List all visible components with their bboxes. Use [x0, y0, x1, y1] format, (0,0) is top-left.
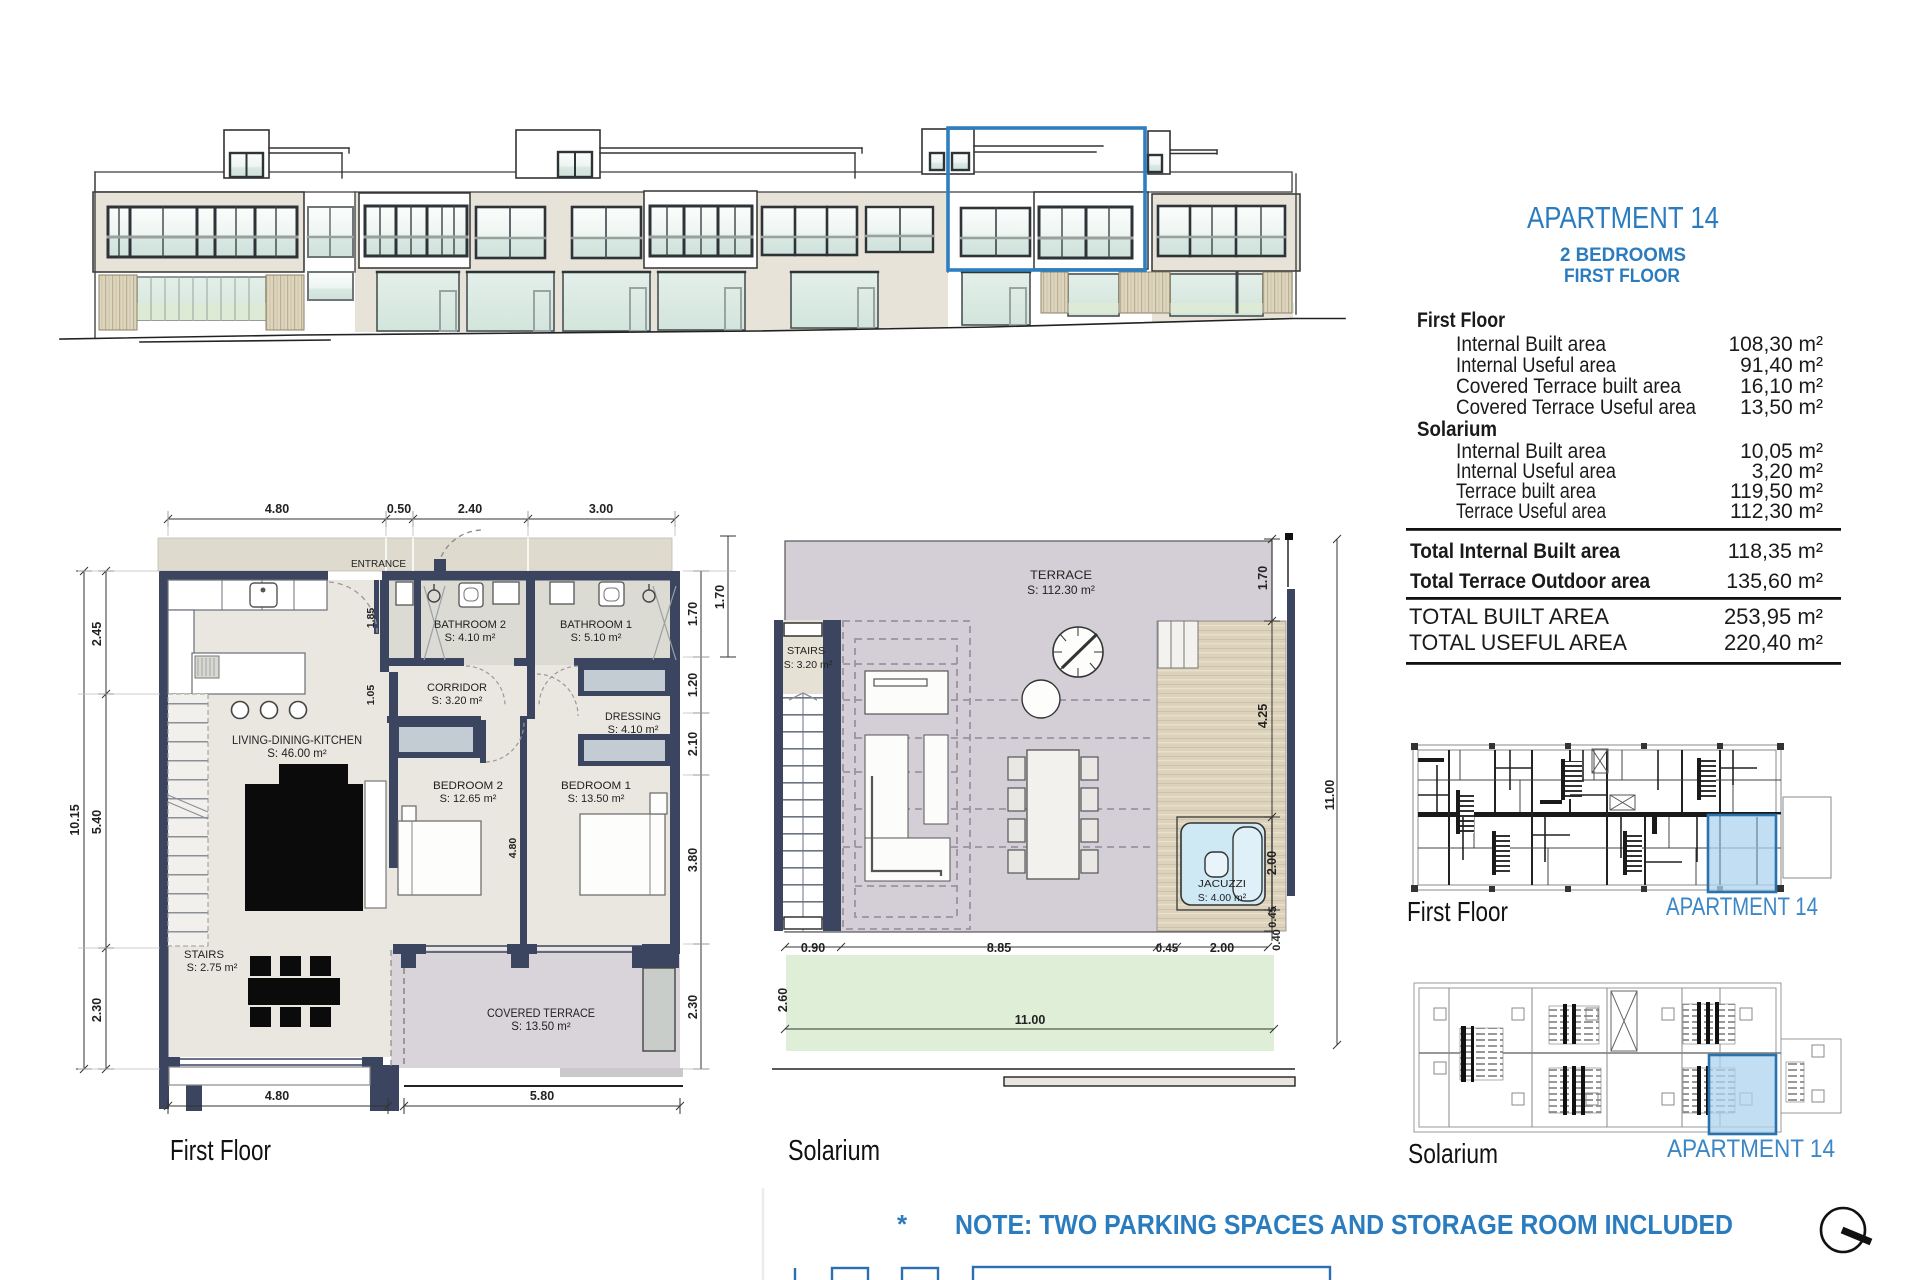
svg-text:2.30: 2.30 [90, 998, 104, 1022]
svg-text:First Floor: First Floor [170, 1135, 271, 1167]
svg-text:Solarium: Solarium [788, 1135, 880, 1167]
svg-text:4.80: 4.80 [265, 502, 289, 516]
svg-text:2 BEDROOMS: 2 BEDROOMS [1560, 245, 1686, 266]
svg-text:First Floor: First Floor [1407, 896, 1508, 927]
svg-text:Solarium: Solarium [1408, 1138, 1498, 1169]
svg-text:S: 4.00 m²: S: 4.00 m² [1198, 892, 1247, 904]
svg-text:1.70: 1.70 [713, 585, 727, 609]
svg-text:TOTAL BUILT AREA: TOTAL BUILT AREA [1409, 604, 1609, 629]
svg-text:APARTMENT 14: APARTMENT 14 [1666, 893, 1818, 921]
svg-text:Covered Terrace Useful area: Covered Terrace Useful area [1456, 396, 1696, 419]
svg-text:APARTMENT 14: APARTMENT 14 [1527, 200, 1719, 235]
svg-text:STAIRS: STAIRS [184, 949, 224, 961]
svg-text:220,40 m²: 220,40 m² [1724, 630, 1823, 655]
svg-text:10.15: 10.15 [68, 804, 82, 835]
svg-text:118,35 m²: 118,35 m² [1728, 539, 1823, 563]
svg-text:First Floor: First Floor [1417, 309, 1505, 332]
svg-text:0.45: 0.45 [1156, 943, 1179, 955]
svg-text:4.25: 4.25 [1256, 704, 1270, 728]
svg-text:3.80: 3.80 [686, 848, 700, 872]
svg-text:Total Internal Built area: Total Internal Built area [1410, 539, 1621, 563]
svg-text:11.00: 11.00 [1323, 780, 1337, 811]
svg-text:JACUZZI: JACUZZI [1198, 878, 1246, 890]
svg-text:S: 12.65 m²: S: 12.65 m² [440, 793, 497, 805]
svg-text:2.00: 2.00 [1210, 941, 1234, 955]
svg-text:Solarium: Solarium [1417, 418, 1497, 441]
svg-text:TERRACE: TERRACE [1030, 568, 1092, 582]
svg-text:5.40: 5.40 [90, 810, 104, 834]
svg-text:S: 5.10 m²: S: 5.10 m² [571, 632, 622, 644]
svg-text:BEDROOM 1: BEDROOM 1 [561, 780, 631, 792]
svg-text:1.20: 1.20 [686, 673, 700, 697]
svg-text:Total Terrace Outdoor area: Total Terrace Outdoor area [1410, 569, 1651, 593]
svg-text:5.80: 5.80 [530, 1089, 554, 1103]
svg-text:11.00: 11.00 [1015, 1013, 1046, 1027]
svg-text:1.05: 1.05 [365, 685, 377, 706]
svg-text:S: 4.10 m²: S: 4.10 m² [608, 724, 659, 736]
svg-text:108,30 m²: 108,30 m² [1728, 333, 1823, 356]
svg-text:ENTRANCE: ENTRANCE [351, 558, 406, 570]
svg-text:S: 3.20 m²: S: 3.20 m² [784, 659, 833, 671]
svg-text:1.70: 1.70 [1256, 566, 1270, 590]
svg-text:*: * [897, 1209, 908, 1239]
svg-text:16,10 m²: 16,10 m² [1740, 375, 1823, 398]
svg-text:S: 46.00 m²: S: 46.00 m² [267, 748, 327, 760]
svg-text:0.50: 0.50 [387, 502, 411, 516]
svg-text:2.60: 2.60 [776, 988, 790, 1012]
svg-text:BATHROOM 1: BATHROOM 1 [560, 619, 632, 631]
svg-text:2.00: 2.00 [1265, 851, 1279, 875]
svg-text:112,30 m²: 112,30 m² [1730, 500, 1823, 523]
svg-text:253,95 m²: 253,95 m² [1724, 604, 1823, 629]
svg-text:8.85: 8.85 [987, 941, 1011, 955]
svg-text:135,60 m²: 135,60 m² [1726, 569, 1823, 593]
svg-text:1.85: 1.85 [365, 608, 377, 629]
svg-text:BATHROOM 2: BATHROOM 2 [434, 619, 506, 631]
svg-text:DRESSING: DRESSING [605, 711, 661, 723]
svg-text:APARTMENT 14: APARTMENT 14 [1667, 1135, 1835, 1163]
svg-text:4.80: 4.80 [507, 838, 519, 859]
svg-text:BEDROOM 2: BEDROOM 2 [433, 780, 503, 792]
svg-text:S: 3.20 m²: S: 3.20 m² [432, 695, 483, 707]
svg-text:COVERED TERRACE: COVERED TERRACE [487, 1008, 595, 1020]
svg-text:13,50 m²: 13,50 m² [1740, 396, 1823, 419]
svg-text:Terrace Useful area: Terrace Useful area [1456, 500, 1606, 523]
svg-text:Internal Useful area: Internal Useful area [1456, 354, 1616, 377]
svg-text:2.10: 2.10 [686, 732, 700, 756]
svg-text:NOTE: TWO PARKING SPACES AND: NOTE: TWO PARKING SPACES AND STORAGE ROO… [955, 1209, 1733, 1240]
svg-text:2.30: 2.30 [686, 995, 700, 1019]
svg-text:LIVING-DINING-KITCHEN: LIVING-DINING-KITCHEN [232, 735, 362, 747]
svg-text:S: 13.50 m²: S: 13.50 m² [511, 1021, 571, 1033]
svg-text:FIRST FLOOR: FIRST FLOOR [1564, 266, 1680, 287]
svg-text:4.80: 4.80 [265, 1089, 289, 1103]
svg-text:S: 2.75 m²: S: 2.75 m² [187, 962, 238, 974]
svg-text:2.40: 2.40 [458, 502, 482, 516]
svg-text:1.70: 1.70 [686, 602, 700, 626]
svg-text:S: 13.50 m²: S: 13.50 m² [568, 793, 625, 805]
svg-text:91,40 m²: 91,40 m² [1740, 354, 1823, 377]
svg-text:0.90: 0.90 [801, 941, 825, 955]
svg-text:TOTAL USEFUL AREA: TOTAL USEFUL AREA [1409, 630, 1627, 655]
svg-text:Covered Terrace built area: Covered Terrace built area [1456, 375, 1681, 398]
svg-text:STAIRS: STAIRS [787, 645, 825, 657]
svg-text:S: 4.10 m²: S: 4.10 m² [445, 632, 496, 644]
svg-text:0.45: 0.45 [1267, 906, 1279, 927]
svg-text:S: 112.30 m²: S: 112.30 m² [1027, 583, 1095, 597]
svg-text:3.00: 3.00 [589, 502, 613, 516]
svg-text:CORRIDOR: CORRIDOR [427, 682, 487, 694]
svg-text:2.45: 2.45 [90, 622, 104, 646]
svg-text:Internal Built area: Internal Built area [1456, 333, 1606, 356]
svg-text:0.40: 0.40 [1271, 929, 1283, 950]
